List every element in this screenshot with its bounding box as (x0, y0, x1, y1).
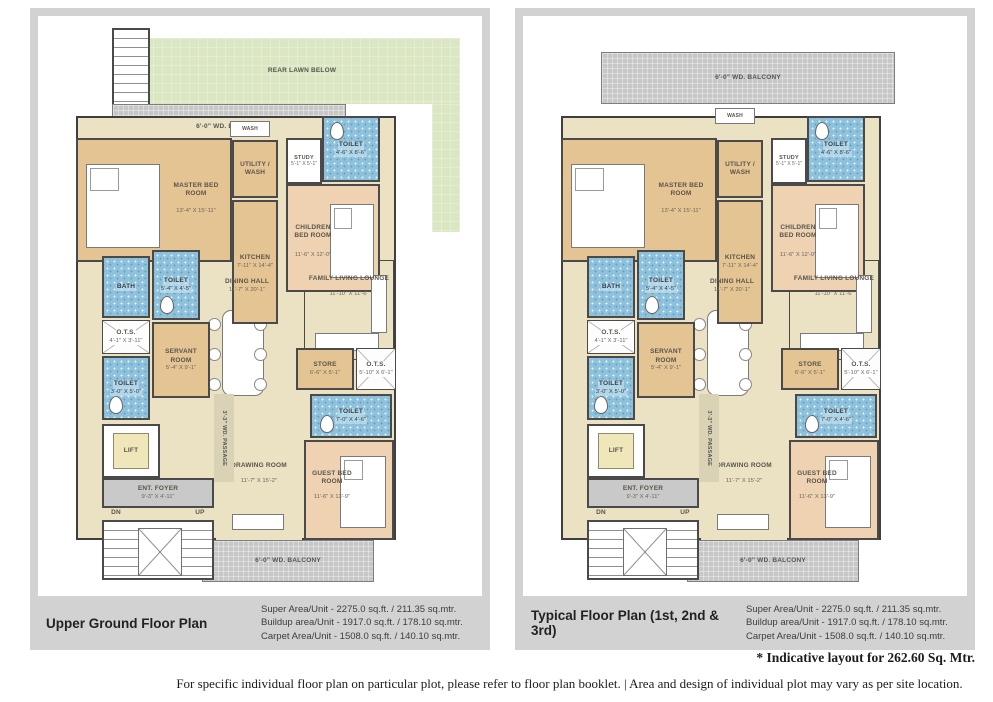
room-study: STUDY 5'-1" X 5'-1" (286, 138, 322, 184)
room-store: STORE 6'-6" X 5'-1" (781, 348, 839, 390)
plan-area-specs: Super Area/Unit - 2275.0 sq.ft. / 211.35… (746, 603, 975, 643)
plan-title: Typical Floor Plan (1st, 2nd & 3rd) (515, 608, 746, 638)
passage: 3'-3" WD. PASSAGE (699, 394, 719, 482)
room-toilet-small: TOILET 3'-0" X 5'-0" (587, 356, 635, 420)
toilet-icon (330, 122, 344, 140)
typical-plan-drawing: 6'-0" WD. BALCONY DINING HALL 11'-7" X 2… (523, 16, 967, 596)
bed-icon (815, 204, 859, 278)
front-balcony: 6'-0" WD. BALCONY (687, 540, 859, 582)
ots-shaft-big: O.T.S. 5'-10" X 6'-1" (841, 348, 881, 390)
toilet-icon (109, 396, 123, 414)
bed-icon (340, 456, 386, 528)
disclaimer-note: For specific individual floor plan on pa… (150, 676, 989, 692)
room-bath: BATH (102, 256, 150, 318)
room-toilet-top: TOILET 4'-6" X 8'-6" (807, 116, 865, 182)
main-staircase (102, 520, 214, 580)
room-servant: SERVANT ROOM 5'-4" X 9'-1" (637, 322, 695, 398)
ots-shaft-big: O.T.S. 5'-10" X 6'-1" (356, 348, 396, 390)
room-toilet-small: TOILET 3'-0" X 5'-0" (102, 356, 150, 420)
passage: 3'-3" WD. PASSAGE (214, 394, 234, 482)
room-master-bedroom: MASTER BED ROOM 13'-4" X 15'-11" (561, 138, 717, 262)
wash-area: WASH (715, 108, 755, 124)
carpet-area-line: Carpet Area/Unit - 1508.0 sq.ft. / 140.1… (746, 630, 975, 643)
toilet-icon (805, 415, 819, 433)
sofa-icon (371, 275, 387, 333)
toilet-icon (160, 296, 174, 314)
buildup-area-line: Buildup area/Unit - 1917.0 sq.ft. / 178.… (746, 616, 975, 629)
plan-area-specs: Super Area/Unit - 2275.0 sq.ft. / 211.35… (261, 603, 490, 643)
stair-x-icon (138, 528, 182, 576)
sofa-icon (856, 275, 872, 333)
room-kitchen: KITCHEN 7'-11" X 14'-4" (717, 200, 763, 324)
wash-area: WASH (230, 121, 270, 137)
super-area-line: Super Area/Unit - 2275.0 sq.ft. / 211.35… (746, 603, 975, 616)
bed-icon (571, 164, 645, 248)
bed-icon (86, 164, 160, 248)
rear-lawn: REAR LAWN BELOW (144, 38, 460, 104)
bed-icon (825, 456, 871, 528)
entrance-foyer: ENT. FOYER 9'-3" X 4'-11" (587, 478, 699, 508)
plan-title: Upper Ground Floor Plan (30, 616, 261, 631)
room-study: STUDY 5'-1" X 5'-1" (771, 138, 807, 184)
buildup-area-line: Buildup area/Unit - 1917.0 sq.ft. / 178.… (261, 616, 490, 629)
entrance-foyer: ENT. FOYER 9'-3" X 4'-11" (102, 478, 214, 508)
room-kitchen: KITCHEN 7'-11" X 14'-4" (232, 200, 278, 324)
stair-down-label: DN (106, 508, 126, 518)
floor-plan-panel-typical: 6'-0" WD. BALCONY DINING HALL 11'-7" X 2… (515, 8, 975, 650)
room-master-bedroom: MASTER BED ROOM 13'-4" X 15'-11" (76, 138, 232, 262)
rear-balcony: 6'-0" WD. BALCONY (601, 52, 895, 104)
room-bath: BATH (587, 256, 635, 318)
toilet-icon (815, 122, 829, 140)
room-toilet-guest: TOILET 7'-0" X 4'-6" (795, 394, 877, 438)
room-store: STORE 6'-6" X 5'-1" (296, 348, 354, 390)
room-guest-bedroom: GUEST BED ROOM 11'-6" X 13'-9" (304, 440, 394, 540)
room-family-living-lounge: FAMILY LIVING LOUNGE 11'-10" X 11'-6" (304, 260, 394, 360)
room-utility-wash: UTILITY / WASH (232, 140, 278, 198)
main-staircase (587, 520, 699, 580)
ots-shaft-small: O.T.S. 4'-1" X 3'-11" (587, 320, 635, 354)
room-family-living-lounge: FAMILY LIVING LOUNGE 11'-10" X 11'-6" (789, 260, 879, 360)
super-area-line: Super Area/Unit - 2275.0 sq.ft. / 211.35… (261, 603, 490, 616)
carpet-area-line: Carpet Area/Unit - 1508.0 sq.ft. / 140.1… (261, 630, 490, 643)
stair-up-label: UP (190, 508, 210, 518)
ots-shaft-small: O.T.S. 4'-1" X 3'-11" (102, 320, 150, 354)
toilet-icon (645, 296, 659, 314)
indicative-layout-note: * Indicative layout for 262.60 Sq. Mtr. (756, 650, 975, 666)
upper-ground-plan-drawing: REAR LAWN BELOW 6'-0" WD. BALCONY DINING… (38, 16, 482, 596)
lift: LIFT (102, 424, 160, 478)
brochure-page: REAR LAWN BELOW 6'-0" WD. BALCONY DINING… (0, 0, 993, 702)
dining-chairs-icon (209, 319, 220, 330)
toilet-icon (594, 396, 608, 414)
room-toilet-top: TOILET 4'-6" X 8'-6" (322, 116, 380, 182)
sofa-icon (717, 514, 769, 530)
room-utility-wash: UTILITY / WASH (717, 140, 763, 198)
floor-plan-panel-upper-ground: REAR LAWN BELOW 6'-0" WD. BALCONY DINING… (30, 8, 490, 650)
sofa-icon (232, 514, 284, 530)
bed-icon (330, 204, 374, 278)
stair-down-label: DN (591, 508, 611, 518)
lift: LIFT (587, 424, 645, 478)
stair-up-label: UP (675, 508, 695, 518)
plan-caption: Upper Ground Floor Plan Super Area/Unit … (30, 596, 490, 650)
rear-lawn-side-strip (432, 104, 460, 232)
room-toilet-guest: TOILET 7'-0" X 4'-6" (310, 394, 392, 438)
room-guest-bedroom: GUEST BED ROOM 11'-6" X 13'-9" (789, 440, 879, 540)
toilet-icon (320, 415, 334, 433)
plan-caption: Typical Floor Plan (1st, 2nd & 3rd) Supe… (515, 596, 975, 650)
stair-x-icon (623, 528, 667, 576)
dining-chairs-icon (694, 319, 705, 330)
front-balcony: 6'-0" WD. BALCONY (202, 540, 374, 582)
room-servant: SERVANT ROOM 5'-4" X 9'-1" (152, 322, 210, 398)
